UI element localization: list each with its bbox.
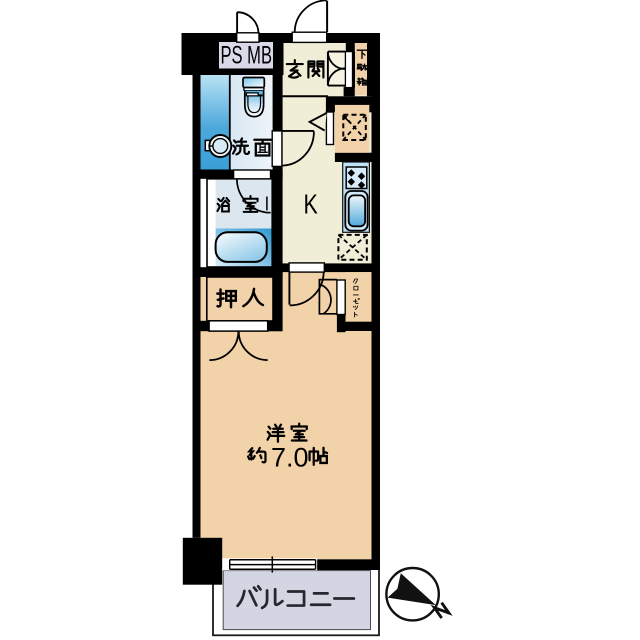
svg-text:K: K	[304, 190, 319, 220]
svg-text:7.0: 7.0	[271, 443, 309, 473]
svg-text:PS MB: PS MB	[221, 41, 273, 69]
